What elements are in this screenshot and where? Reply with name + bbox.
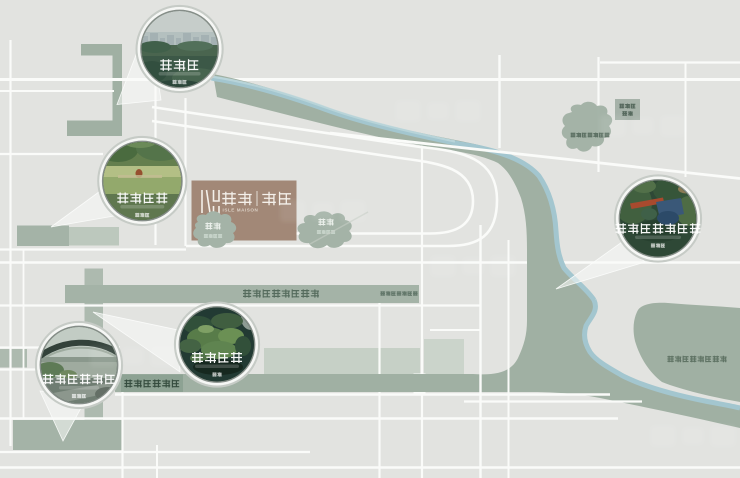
svg-text:ISLE MAISON: ISLE MAISON bbox=[223, 208, 259, 213]
